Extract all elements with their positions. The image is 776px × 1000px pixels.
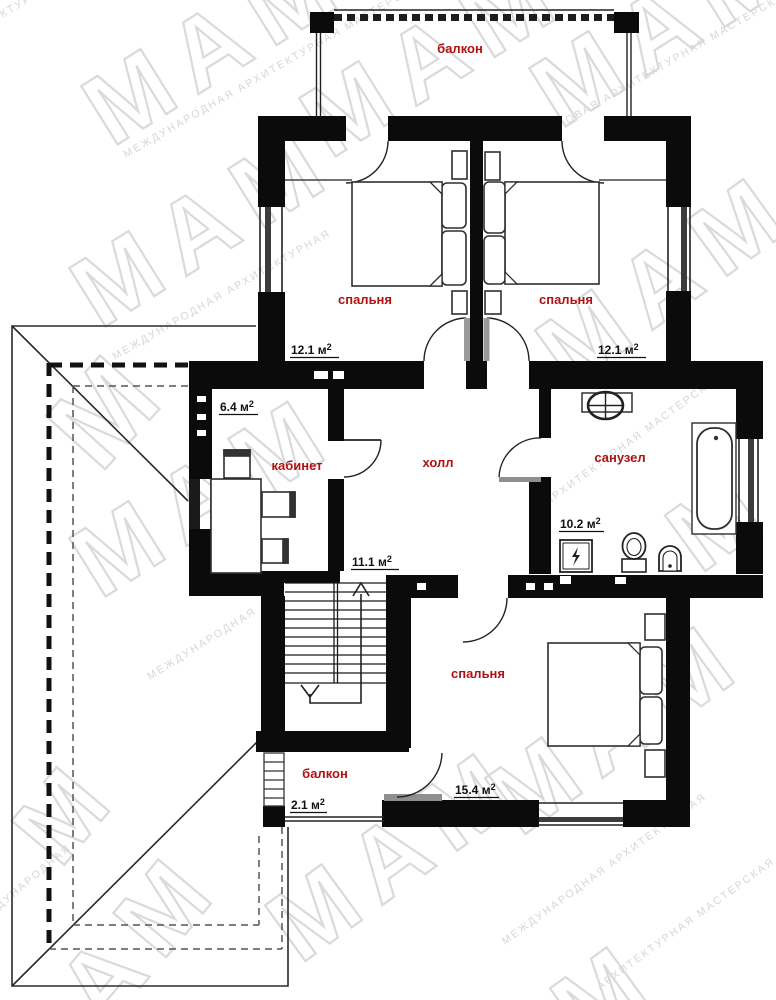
svg-text:6.4 м2: 6.4 м2 [220, 399, 254, 414]
svg-text:2.1 м2: 2.1 м2 [291, 797, 325, 812]
svg-text:спальня: спальня [451, 666, 505, 681]
svg-text:холл: холл [422, 455, 453, 470]
svg-text:10.2 м2: 10.2 м2 [560, 516, 601, 531]
svg-text:спальня: спальня [539, 292, 593, 307]
svg-text:12.1 м2: 12.1 м2 [598, 342, 639, 357]
svg-text:балкон: балкон [437, 41, 483, 56]
svg-text:кабинет: кабинет [271, 458, 322, 473]
svg-text:15.4 м2: 15.4 м2 [455, 782, 496, 797]
svg-text:12.1 м2: 12.1 м2 [291, 342, 332, 357]
svg-text:11.1 м2: 11.1 м2 [352, 554, 392, 569]
svg-text:спальня: спальня [338, 292, 392, 307]
svg-text:санузел: санузел [594, 450, 645, 465]
svg-text:балкон: балкон [302, 766, 348, 781]
